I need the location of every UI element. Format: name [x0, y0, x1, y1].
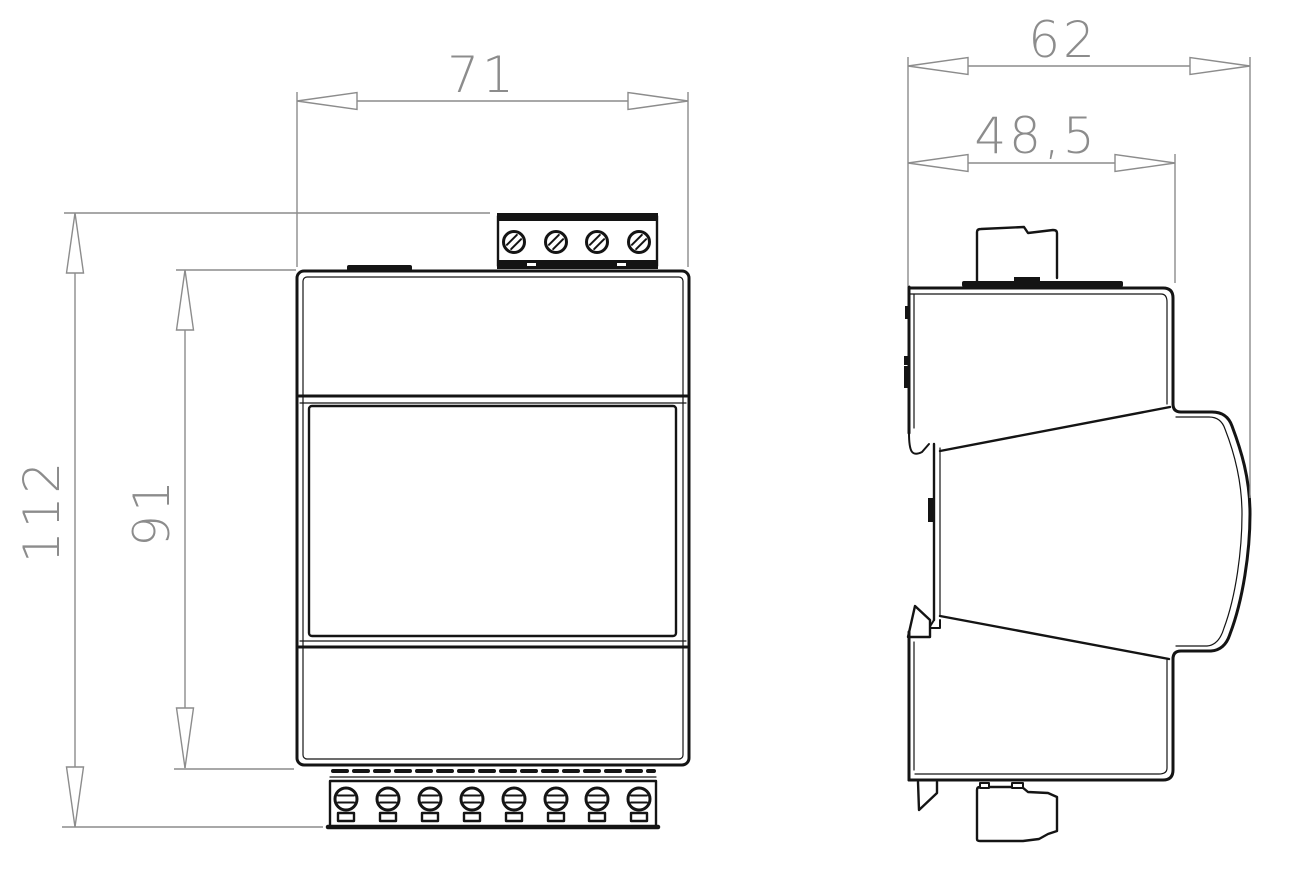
rear-edge-mark [905, 306, 909, 319]
arrowhead-right-icon [1190, 58, 1250, 75]
terminal-block-top-bar [497, 213, 658, 221]
side-bottom-right-outline [909, 658, 1173, 780]
column-mark [928, 498, 933, 522]
side-view [904, 227, 1250, 841]
bezel-outline [1173, 404, 1250, 659]
side-bottom-inner [915, 660, 1167, 774]
terminal-block-bottom-bar [497, 260, 658, 269]
side-top-right-inner [909, 294, 1167, 404]
housing-outline [297, 271, 689, 765]
technical-drawing: 71 62 48,5 112 91 [0, 0, 1300, 891]
arrowhead-down-icon [177, 708, 194, 768]
bottom-foot-tab [918, 782, 937, 810]
bar-notch [617, 263, 626, 266]
top-surface-tab [347, 265, 412, 271]
side-top-right-outline [909, 288, 1173, 404]
side-top-terminal [977, 227, 1057, 281]
arrowhead-left-icon [297, 93, 357, 110]
slope-upper [940, 407, 1170, 451]
arrowhead-right-icon [1115, 155, 1175, 172]
front-top-terminal-block [497, 213, 658, 269]
arrowhead-up-icon [177, 270, 194, 330]
arrowhead-down-icon [67, 767, 84, 827]
arrowhead-left-icon [908, 58, 968, 75]
bar-notch [527, 263, 536, 266]
arrowhead-up-icon [67, 213, 84, 273]
front-housing [297, 265, 689, 765]
din-clip-lower [908, 606, 930, 637]
dimension-value: 62 [1028, 11, 1098, 69]
dimension-value: 112 [13, 459, 71, 563]
arrowhead-right-icon [628, 93, 688, 110]
bezel-inner-line [1176, 417, 1242, 646]
front-view [297, 213, 689, 827]
rear-edge-mark [904, 366, 910, 388]
rear-edge-mark [904, 356, 909, 365]
front-bottom-terminal-block [328, 771, 658, 827]
side-bottom-terminal [977, 787, 1057, 841]
dimension-value: 91 [123, 477, 181, 547]
terminal-block-body [498, 216, 657, 266]
drawing-canvas: 71 62 48,5 112 91 [0, 0, 1300, 891]
din-hook-upper [909, 433, 929, 454]
dimension-value: 71 [447, 46, 517, 104]
terminal-bump [1012, 783, 1023, 788]
terminal-bump [980, 783, 989, 788]
slope-lower [940, 616, 1169, 659]
dimension-body-height: 91 [123, 270, 296, 769]
dimension-value: 48,5 [974, 107, 1097, 165]
top-strip [962, 281, 1123, 287]
arrowhead-left-icon [908, 155, 968, 172]
